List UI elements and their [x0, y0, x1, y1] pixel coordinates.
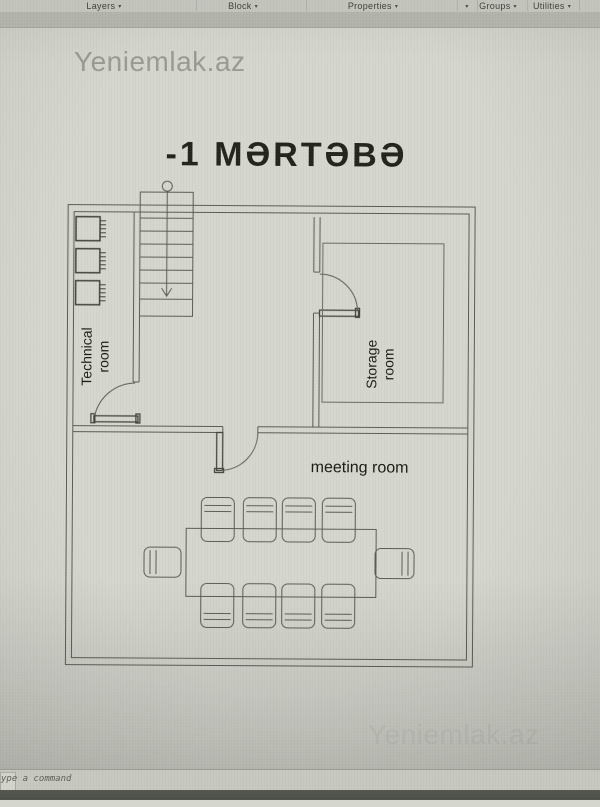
ribbon-panel-groups[interactable]: Groups▾: [479, 1, 517, 11]
panel-dropdown-arrow[interactable]: ▾: [465, 1, 468, 11]
chair-left-end: [144, 547, 181, 577]
ribbon-panel-layers[interactable]: Layers▾: [86, 1, 121, 11]
storage-room-door[interactable]: [320, 274, 360, 317]
outer-walls[interactable]: [65, 205, 475, 667]
ribbon-panel-utilities[interactable]: Utilities▾: [533, 1, 571, 11]
ribbon-lower-band: [0, 12, 600, 28]
ribbon-bar: Layers▾ Block▾ Properties▾ ▾ Groups▾ Uti…: [0, 0, 600, 12]
chair-top-2: [243, 498, 276, 542]
chair-bottom-3: [282, 584, 315, 628]
stair-start-marker: [162, 181, 172, 191]
chair-right-end: [375, 548, 414, 578]
chair-top-3: [282, 498, 315, 542]
ribbon-separator: [477, 0, 478, 11]
chevron-down-icon: ▾: [514, 4, 517, 10]
equipment-boxes[interactable]: [76, 217, 107, 305]
chair-bottom-2: [243, 584, 276, 628]
equipment-hatch: [100, 221, 106, 301]
ribbon-panel-properties-label: Properties: [348, 1, 392, 11]
drawing-canvas[interactable]: -1 MƏRTƏBƏ Technical room Storage room m…: [0, 0, 600, 802]
meeting-room-door[interactable]: [215, 432, 258, 472]
chevron-down-icon: ▾: [395, 4, 398, 10]
ribbon-panel-utilities-label: Utilities: [533, 1, 565, 11]
chevron-down-icon: ▾: [118, 4, 121, 10]
chair-bottom-4: [322, 584, 355, 628]
chair-top-1: [201, 497, 234, 541]
cad-screenshot: { "ribbon": { "panels": [ {"label": "Lay…: [0, 0, 600, 800]
ribbon-separator: [196, 0, 197, 11]
storage-room-wall[interactable]: [313, 217, 320, 427]
chevron-down-icon: ▾: [255, 4, 258, 10]
ribbon-panel-groups-label: Groups: [479, 1, 510, 11]
chairs[interactable]: [144, 497, 415, 629]
chair-top-4: [322, 498, 355, 542]
ribbon-panel-layers-label: Layers: [86, 1, 115, 11]
room-label-technical[interactable]: Technical room: [78, 316, 112, 396]
ribbon-separator: [579, 0, 580, 11]
chair-bottom-1: [201, 583, 234, 627]
bottom-dark-strip: [0, 790, 600, 800]
room-label-meeting[interactable]: meeting room: [280, 458, 440, 478]
floor-title[interactable]: -1 MƏRTƏBƏ: [136, 135, 436, 176]
room-label-storage[interactable]: Storage room: [363, 324, 397, 404]
middle-wall[interactable]: [73, 426, 468, 434]
staircase[interactable]: [140, 181, 194, 316]
chevron-down-icon: ▾: [568, 4, 571, 10]
ribbon-separator: [457, 0, 458, 11]
ribbon-panel-block[interactable]: Block▾: [228, 1, 258, 11]
ribbon-panel-block-label: Block: [228, 1, 252, 11]
chevron-down-icon: ▾: [465, 4, 468, 10]
technical-room-wall[interactable]: [133, 212, 140, 382]
ribbon-separator: [527, 0, 528, 11]
floor-plan-svg: [0, 0, 600, 802]
meeting-table[interactable]: [186, 528, 376, 597]
command-bar[interactable]: ype a command: [0, 769, 600, 791]
command-prompt[interactable]: ype a command: [1, 774, 71, 784]
ribbon-separator: [306, 0, 307, 11]
ribbon-panel-properties[interactable]: Properties▾: [348, 1, 398, 11]
